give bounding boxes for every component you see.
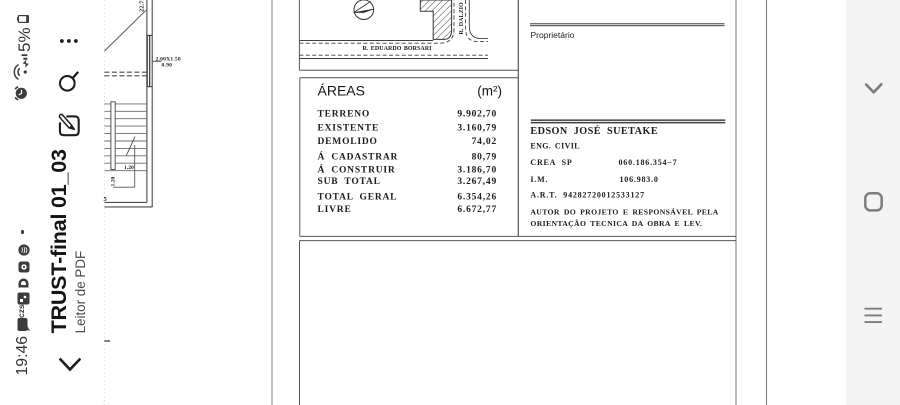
- svg-text:22.7: 22.7: [139, 0, 146, 12]
- svg-text:TOTAL GERAL: TOTAL GERAL: [318, 192, 398, 202]
- svg-text:ORIENTAÇÃO TECNICA DA OBRA E L: ORIENTAÇÃO TECNICA DA OBRA E LEV.: [530, 219, 702, 228]
- svg-text:106.983.0: 106.983.0: [620, 175, 659, 184]
- svg-text:ENG. CIVIL: ENG. CIVIL: [530, 142, 580, 151]
- svg-text:EDSON JOSÉ SUETAKE: EDSON JOSÉ SUETAKE: [530, 125, 658, 137]
- svg-text:0.90: 0.90: [162, 63, 173, 69]
- svg-text:2.00X1.50: 2.00X1.50: [156, 56, 181, 62]
- svg-text:80,79: 80,79: [472, 153, 497, 163]
- svg-text:Á CONSTRUIR: Á CONSTRUIR: [318, 163, 396, 175]
- svg-text:SUB TOTAL: SUB TOTAL: [318, 177, 381, 187]
- svg-text:ÁREAS: ÁREAS: [318, 83, 365, 99]
- svg-text:R. DALZIO: R. DALZIO: [459, 2, 465, 35]
- svg-text:Á CADASTRAR: Á CADASTRAR: [318, 151, 399, 163]
- svg-text:060.186.354−7: 060.186.354−7: [619, 158, 678, 167]
- svg-text:74,02: 74,02: [472, 137, 497, 147]
- svg-text:AUTOR DO PROJETO E RESPONSÁVEL: AUTOR DO PROJETO E RESPONSÁVEL PELA: [530, 206, 718, 216]
- svg-text:DEMOLIDO: DEMOLIDO: [318, 137, 378, 147]
- svg-text:9.902,70: 9.902,70: [457, 110, 497, 120]
- svg-text:Proprietário: Proprietário: [531, 30, 575, 40]
- svg-text:I.M.: I.M.: [530, 175, 548, 184]
- svg-text:EXISTENTE: EXISTENTE: [318, 123, 380, 133]
- svg-text:3.160,79: 3.160,79: [457, 123, 497, 133]
- svg-text:CREA SP: CREA SP: [530, 158, 572, 167]
- svg-text:3.267,49: 3.267,49: [457, 177, 497, 187]
- svg-text:6.354,26: 6.354,26: [457, 192, 497, 202]
- svg-text:(m²): (m²): [477, 84, 502, 99]
- svg-text:A.R.T. 94282720012533127: A.R.T. 94282720012533127: [530, 190, 645, 199]
- svg-text:R. EDUARDO BORSARI: R. EDUARDO BORSARI: [363, 46, 433, 52]
- svg-text:3.186,70: 3.186,70: [457, 165, 497, 175]
- svg-text:6.672,77: 6.672,77: [457, 205, 497, 215]
- svg-text:TERRENO: TERRENO: [318, 110, 371, 120]
- svg-text:LIVRE: LIVRE: [318, 205, 352, 215]
- svg-text:1.20: 1.20: [111, 177, 117, 187]
- svg-text:1.20: 1.20: [124, 165, 134, 171]
